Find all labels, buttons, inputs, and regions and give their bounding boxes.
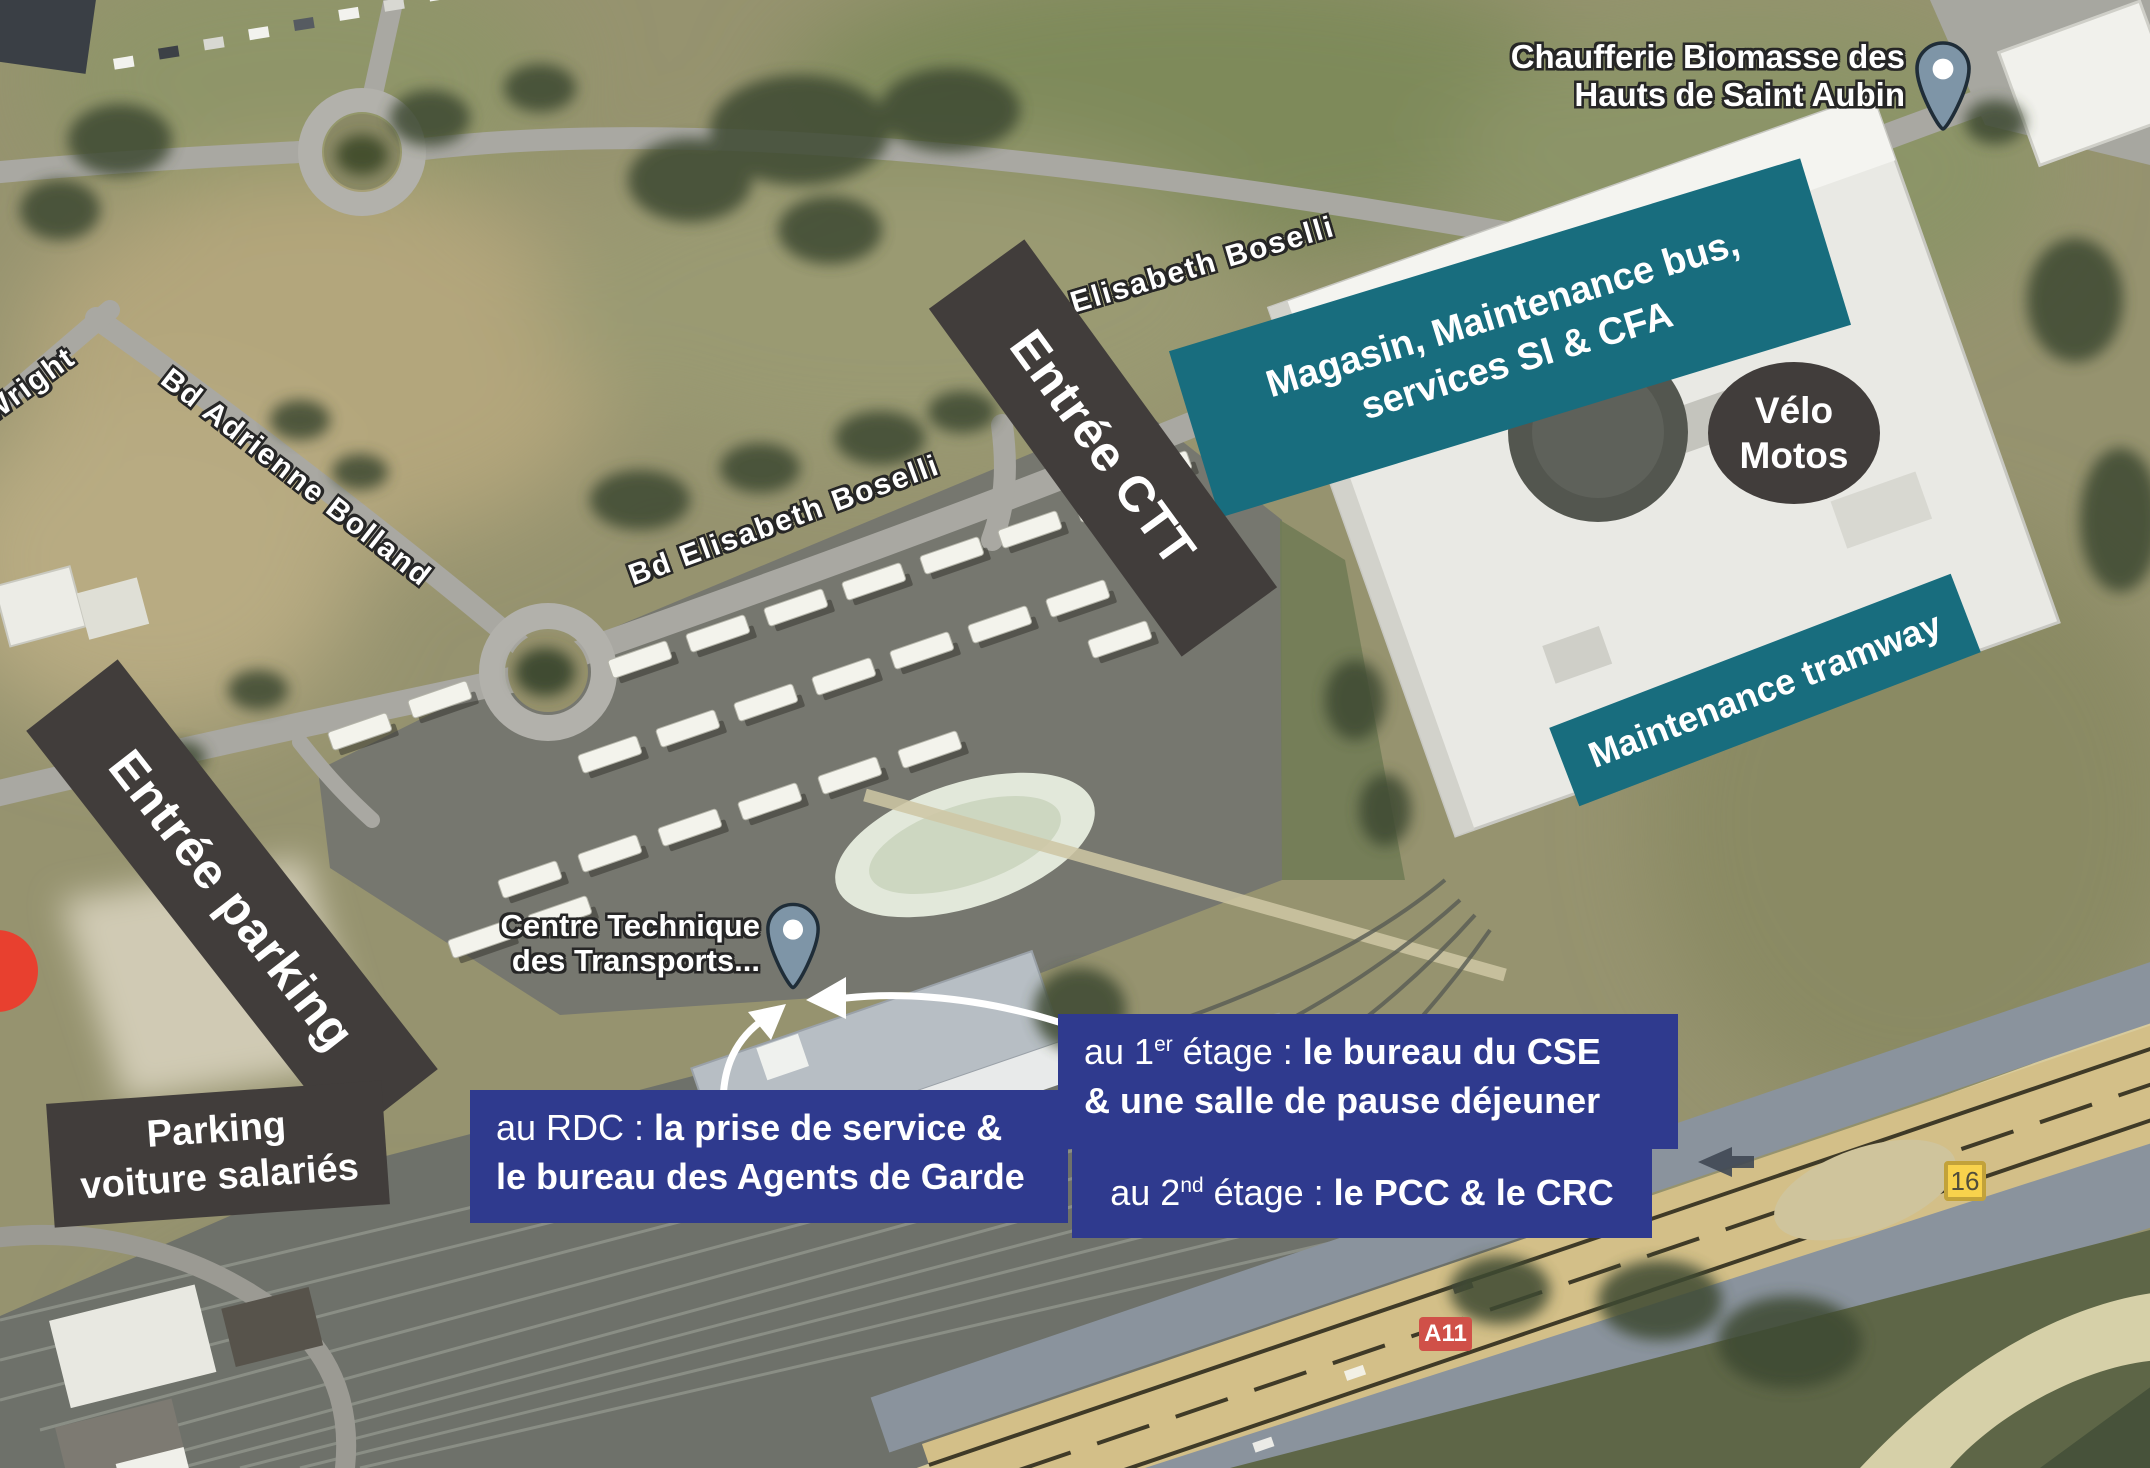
exit-16-chip: 16	[1944, 1161, 1986, 1201]
banner-velo-motos: Vélo Motos	[1708, 362, 1880, 504]
poi-label-chaufferie: Chaufferie Biomasse des Hauts de Saint A…	[1485, 38, 1905, 113]
satellite-map	[0, 0, 2150, 1468]
a11-shield: A11	[1419, 1317, 1472, 1351]
map-annotated-plan: Wright Bd Adrienne Bolland Bd Elisabeth …	[0, 0, 2150, 1468]
info-box-etage1: au 1er étage : le bureau du CSE & une sa…	[1058, 1014, 1678, 1149]
rdc-bold1: la prise de service &	[654, 1107, 1002, 1148]
poi-label-centre-technique: Centre Technique des Transports...	[430, 908, 760, 979]
banner-parking-salaries: Parking voiture salariés	[46, 1080, 390, 1227]
info-box-etage2: au 2nd étage : le PCC & le CRC	[1072, 1146, 1652, 1238]
info-box-rdc: au RDC : la prise de service & le bureau…	[470, 1090, 1068, 1223]
rdc-prefix: au RDC :	[496, 1107, 654, 1148]
map-pin-centre-technique-icon[interactable]	[764, 898, 822, 994]
map-pin-chaufferie-icon[interactable]	[1913, 40, 1973, 132]
rdc-bold2: le bureau des Agents de Garde	[496, 1152, 1068, 1201]
